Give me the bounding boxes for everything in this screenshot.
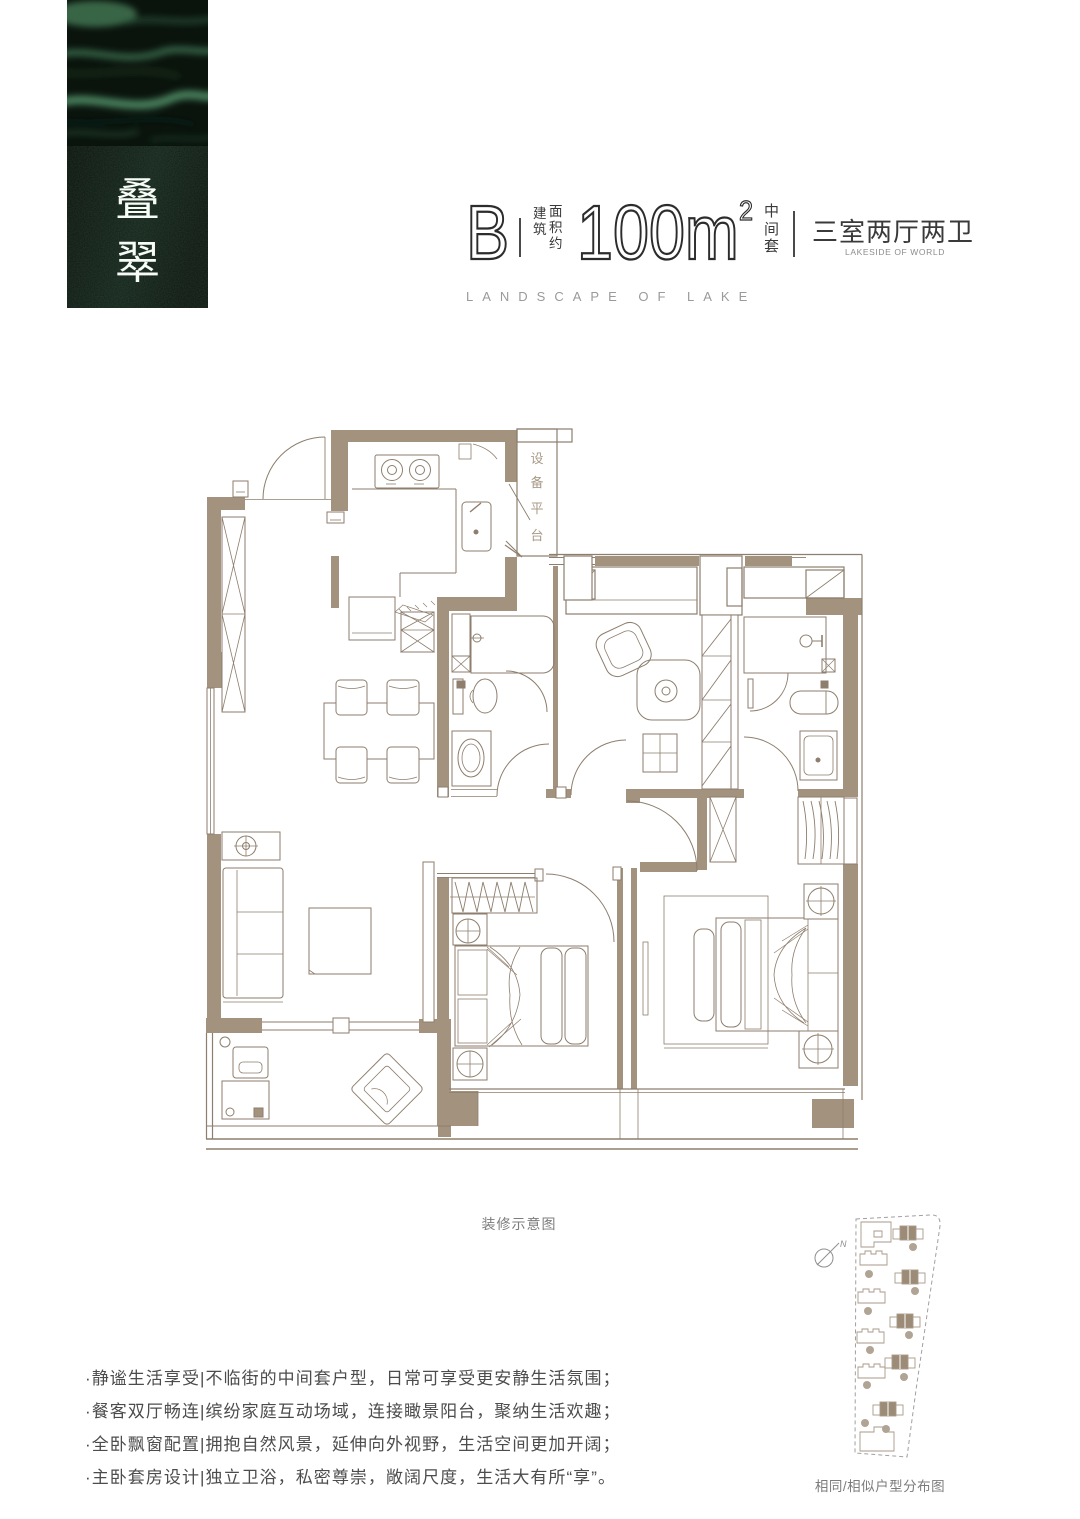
svg-text:设: 设 [530,451,543,466]
svg-text:备: 备 [530,475,543,490]
svg-text:台: 台 [530,528,543,543]
svg-text:N: N [840,1239,847,1249]
svg-text:平: 平 [530,501,543,516]
